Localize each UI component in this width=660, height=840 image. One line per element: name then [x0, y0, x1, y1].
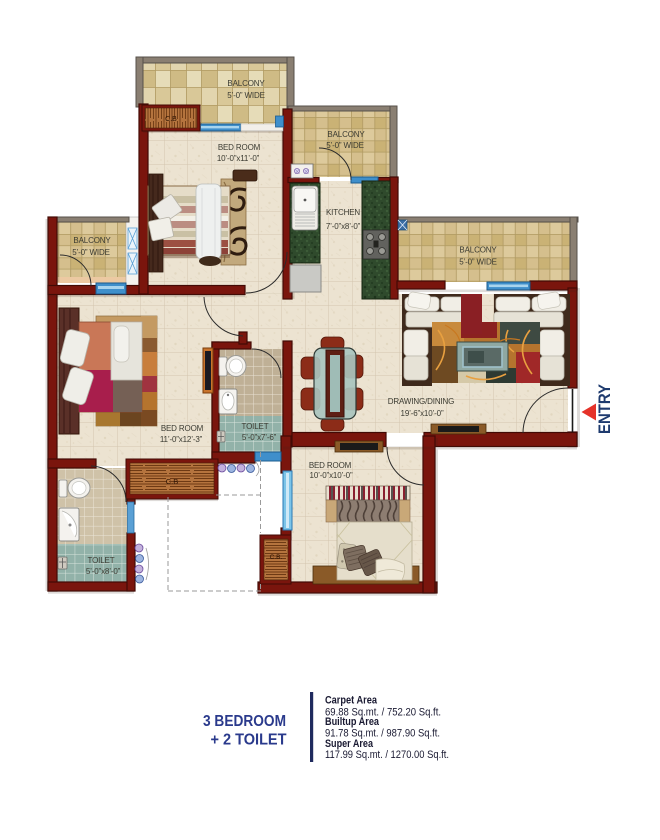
svg-text:BALCONY: BALCONY — [459, 246, 497, 255]
svg-text:C.B: C.B — [166, 477, 179, 486]
svg-text:TOILET: TOILET — [88, 556, 115, 565]
svg-text:+ 2 TOILET: + 2 TOILET — [211, 731, 287, 748]
svg-text:10’-0”x11’-0”: 10’-0”x11’-0” — [217, 154, 260, 163]
svg-text:3 BEDROOM: 3 BEDROOM — [203, 713, 286, 730]
svg-text:5’-0”x7’-6”: 5’-0”x7’-6” — [242, 433, 277, 442]
svg-text:BALCONY: BALCONY — [227, 79, 265, 88]
svg-text:BED ROOM: BED ROOM — [161, 424, 204, 433]
svg-text:DRAWING/DINING: DRAWING/DINING — [388, 397, 455, 406]
svg-text:5’-0”x8’-0”: 5’-0”x8’-0” — [86, 567, 121, 576]
svg-text:ENTRY: ENTRY — [595, 383, 614, 434]
svg-text:C.B.: C.B. — [270, 554, 283, 561]
svg-text:5’-0” WIDE: 5’-0” WIDE — [72, 248, 110, 257]
svg-text:10’-0”x10’-0”: 10’-0”x10’-0” — [310, 471, 353, 480]
svg-text:KITCHEN: KITCHEN — [326, 208, 360, 217]
svg-text:BED ROOM: BED ROOM — [309, 461, 352, 470]
svg-text:TOILET: TOILET — [242, 422, 269, 431]
svg-text:7’-0”x8’-0”: 7’-0”x8’-0” — [326, 222, 361, 231]
svg-text:11’-0”x12’-3”: 11’-0”x12’-3” — [160, 435, 203, 444]
svg-text:5’-0” WIDE: 5’-0” WIDE — [326, 141, 364, 150]
svg-text:BALCONY: BALCONY — [73, 236, 111, 245]
svg-text:BALCONY: BALCONY — [327, 130, 365, 139]
svg-text:5’-0” WIDE: 5’-0” WIDE — [459, 258, 497, 267]
svg-text:Builtup Area: Builtup Area — [325, 716, 380, 728]
svg-text:Carpet Area: Carpet Area — [325, 694, 378, 706]
svg-text:19’-6”x10’-0”: 19’-6”x10’-0” — [401, 409, 444, 418]
svg-text:117.99 Sq.mt. / 1270.00 Sq.ft.: 117.99 Sq.mt. / 1270.00 Sq.ft. — [325, 749, 449, 761]
svg-text:BED ROOM: BED ROOM — [218, 143, 261, 152]
svg-text:C.B: C.B — [165, 116, 177, 123]
svg-text:5’-0” WIDE: 5’-0” WIDE — [227, 91, 265, 100]
